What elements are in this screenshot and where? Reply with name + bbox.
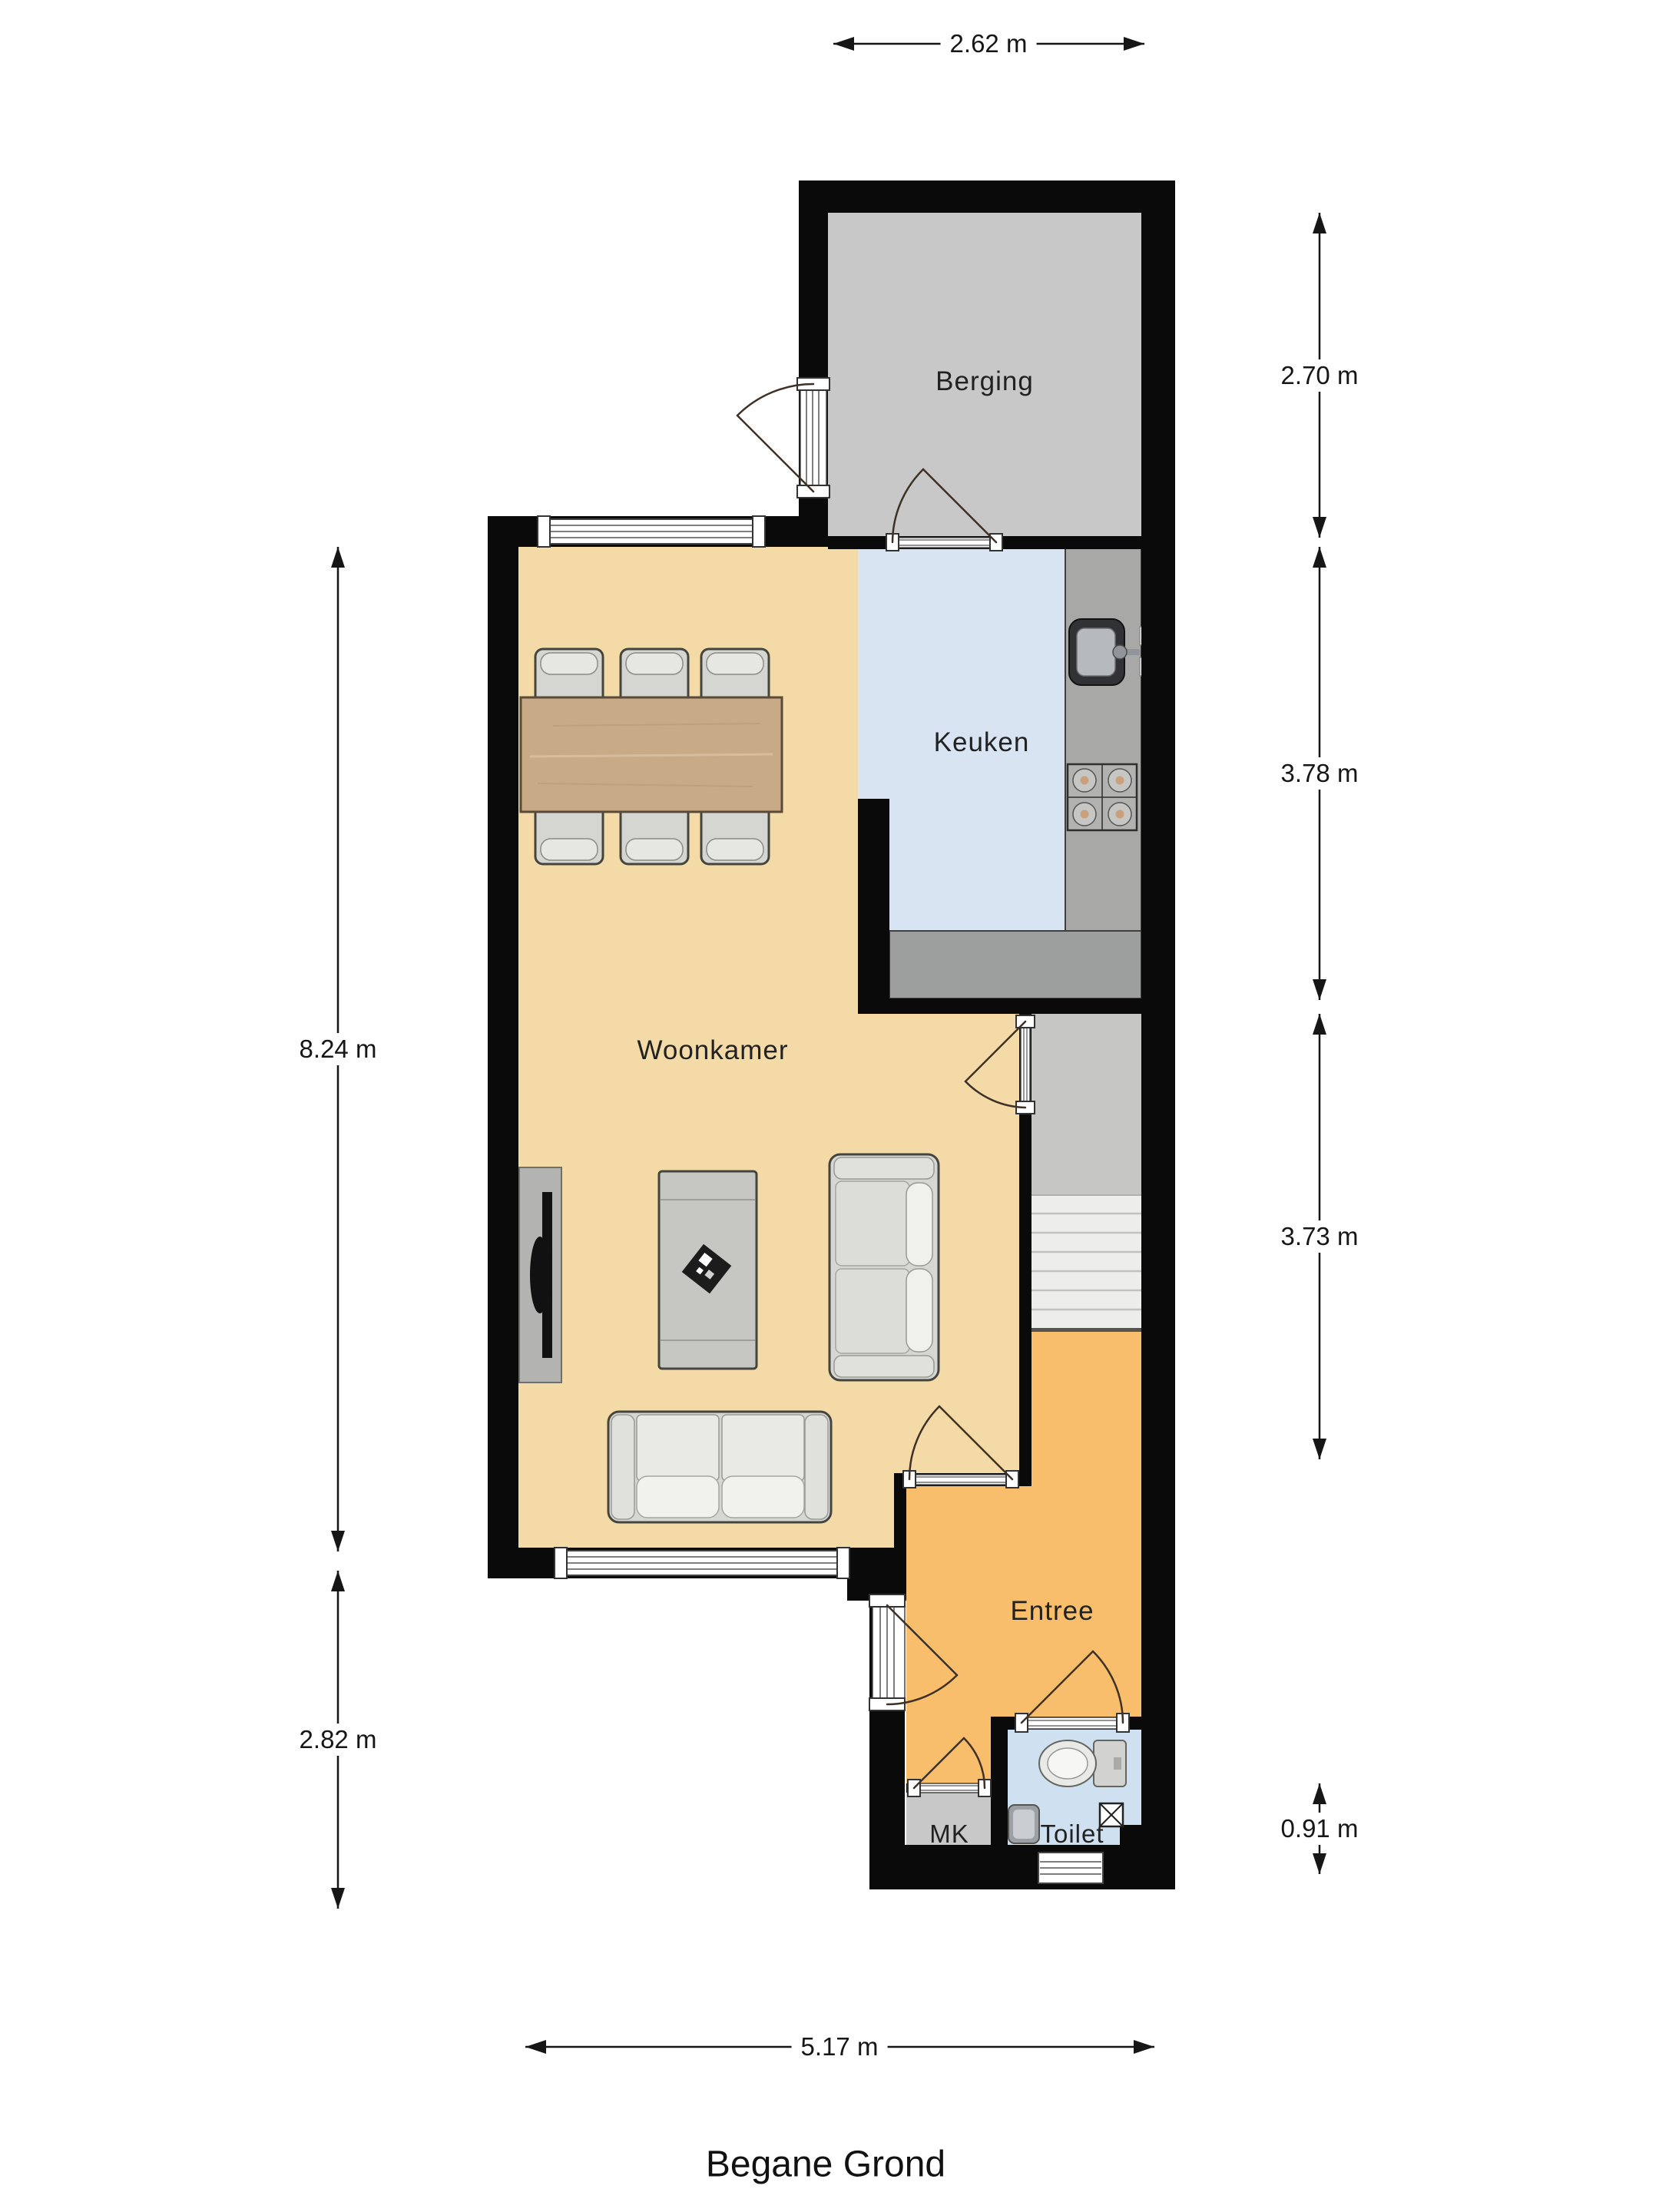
hall-landing-floor [1031,1014,1141,1194]
tv-cabinet [519,1167,561,1382]
room-label-woonkamer: Woonkamer [637,1035,788,1066]
hand-basin-icon [1008,1805,1039,1843]
sofa-right [829,1154,939,1380]
wall-corner-chunk [847,1548,906,1601]
wall-toilet-corner [1120,1825,1141,1845]
page-title: Begane Grond [706,2144,945,2186]
staircase [1031,1194,1141,1332]
dim-label-bottom: 5.17 m [792,2031,888,2063]
wall-left [488,516,518,1578]
kitchen-stove-icon [1068,764,1137,830]
room-label-toilet: Toilet [1040,1820,1104,1849]
coffee-table [659,1171,757,1369]
room-label-berging: Berging [935,366,1034,397]
wall-keuken-south [877,998,1141,1014]
window-woonkamer-top [538,516,765,547]
dim-label-right-2: 3.78 m [1272,757,1368,790]
wall-entree-upper-left [894,1486,906,1548]
dim-label-left-2: 2.82 m [290,1724,386,1756]
wall-bottom [869,1845,1175,1889]
dining-table [521,697,782,812]
toilet-fixture-icon [1039,1740,1126,1786]
dim-label-left-1: 8.24 m [290,1033,386,1065]
window-woonkamer-bottom [555,1548,849,1578]
wall-keuken-stub [858,799,889,1014]
dim-label-right-3: 3.73 m [1272,1220,1368,1253]
dim-label-right-1: 2.70 m [1272,359,1368,392]
wall-mk-toilet [991,1717,1008,1845]
dining-set [521,649,782,864]
room-label-entree: Entree [1010,1596,1094,1627]
room-label-mk: MK [929,1820,969,1849]
dim-label-right-4: 0.91 m [1272,1813,1368,1845]
wall-right [1141,180,1175,1889]
door-berging-exterior [737,378,829,498]
sofa-bottom [608,1412,831,1522]
wall-berging-top [799,180,1175,213]
window-toilet [1038,1853,1103,1883]
floorplan-drawing [0,0,1659,2212]
floorplan-canvas: Berging Keuken Woonkamer Entree MK Toile… [0,0,1659,2212]
kitchen-counter-bottom [889,931,1141,998]
dim-label-top: 2.62 m [941,28,1037,60]
room-label-keuken: Keuken [934,727,1030,758]
